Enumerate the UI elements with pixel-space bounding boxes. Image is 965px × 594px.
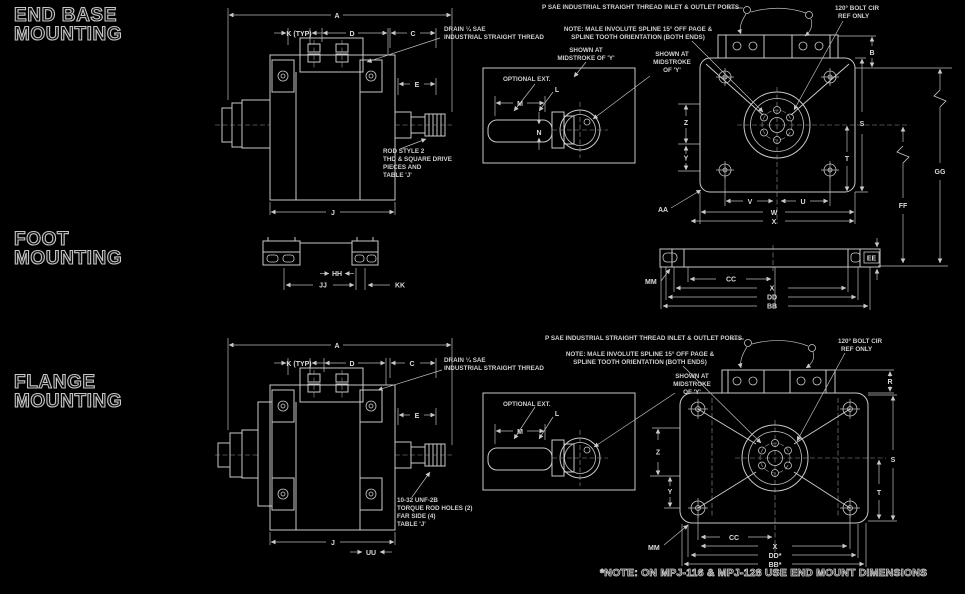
dim-label-t2: T — [877, 490, 882, 497]
dim-label-t: T — [845, 156, 850, 163]
dim-label-mm: MM — [645, 279, 657, 286]
flange-side-view: A K (TYP) D C E J UU DRAIN ¼ SAE INDUSTR… — [215, 338, 544, 557]
dim-label-c: C — [410, 31, 415, 38]
optional-ext-label: OPTIONAL EXT. — [503, 76, 551, 83]
dim-label-n: N — [536, 130, 541, 137]
foot-mounting-drawing: HH JJ KK MM CC X DD BB — [215, 230, 965, 325]
dim-label-kk: KK — [395, 283, 405, 290]
ports-note: P SAE INDUSTRIAL STRAIGHT THREAD INLET &… — [542, 4, 739, 11]
dim-label-w: W — [771, 210, 778, 217]
dim-label-y2: Y — [668, 489, 673, 496]
title-line: END BASE — [14, 5, 117, 26]
dim-label-gg: GG — [935, 169, 946, 176]
drain-note2-line2: INDUSTRIAL STRAIGHT THREAD — [444, 365, 544, 372]
dim-label-k2: K (TYP) — [286, 361, 311, 368]
flange-optional-extension-view: OPTIONAL EXT. L M — [483, 393, 675, 490]
title-line: MOUNTING — [14, 248, 122, 269]
dim-label-aa: AA — [658, 207, 668, 214]
dim-label-bb: BB — [767, 304, 777, 311]
spline-note-line2: SPLINE TOOTH ORIENTATION (BOTH ENDS) — [571, 34, 705, 41]
dim-label-l: L — [555, 87, 560, 94]
dim-label-d2: D — [349, 361, 354, 368]
dim-label-uu: UU — [366, 550, 376, 557]
midstroke-note2-line3: OF 'Y' — [663, 67, 681, 74]
dim-label-u: U — [800, 199, 805, 206]
drawing-sheet: END BASEMOUNTING FOOTMOUNTING FLANGEMOUN… — [0, 0, 965, 594]
midstroke-note3-line3: OF 'Y' — [683, 389, 701, 396]
dim-label-d: D — [349, 31, 354, 38]
rod-note2-line2: TORQUE ROD HOLES (2) — [397, 505, 472, 512]
title-line: MOUNTING — [14, 391, 122, 412]
rod-note-line2: THD & SQUARE DRIVE — [383, 156, 452, 163]
section-title-end-base: END BASEMOUNTING — [14, 6, 122, 44]
bolt-circle-note2-line2: REF ONLY — [841, 346, 873, 353]
dim-label-s2: S — [891, 457, 896, 464]
dim-label-z: Z — [684, 120, 689, 127]
dim-label-dd-star: DD* — [769, 553, 782, 560]
dim-label-cc: CC — [726, 277, 736, 284]
midstroke-note2-line1: SHOWN AT — [655, 51, 689, 58]
rod-note2-line4: TABLE 'J' — [397, 521, 426, 528]
drain-note-line2: INDUSTRIAL STRAIGHT THREAD — [444, 34, 544, 41]
dim-label-x2: X — [770, 286, 775, 293]
dim-label-ee: EE — [867, 256, 877, 263]
midstroke-note3-line2: MIDSTROKE — [673, 381, 711, 388]
foot-side-view: HH JJ KK — [263, 237, 405, 290]
midstroke-note-line1: SHOWN AT — [569, 47, 603, 54]
dim-label-c2: C — [409, 361, 414, 368]
spline-note2-line1: NOTE: MALE INVOLUTE SPLINE 15° OFF PAGE … — [566, 350, 715, 358]
title-line: MOUNTING — [14, 24, 122, 45]
sheet-footnote: *NOTE: ON MPJ-116 & MPJ-128 USE END MOUN… — [600, 567, 927, 579]
rod-note2-line3: FAR SIDE (4) — [397, 513, 436, 520]
flange-end-view: P SAE INDUSTRIAL STRAIGHT THREAD INLET &… — [545, 335, 897, 569]
corner-bolt-bosses — [716, 68, 839, 179]
rod-note2-line1: 10-32 UNF-2B — [397, 497, 438, 504]
section-title-foot: FOOTMOUNTING — [14, 230, 122, 268]
dim-label-mm2: MM — [648, 545, 660, 552]
rod-note-line4: TABLE 'J' — [383, 172, 412, 179]
dim-label-j2: J — [331, 540, 335, 547]
dim-label-e: E — [415, 82, 420, 89]
bolt-circle-note-line1: 120° BOLT CIR — [835, 4, 879, 12]
flange-corner-holes — [688, 399, 860, 518]
dim-label-m: M — [517, 101, 523, 108]
title-line: FLANGE — [14, 372, 96, 393]
rod-note-line3: PIECES AND — [383, 164, 422, 171]
title-line: FOOT — [14, 229, 69, 250]
ports-note2: P SAE INDUSTRIAL STRAIGHT THREAD INLET &… — [545, 335, 742, 342]
optional-extension-view: OPTIONAL EXT. L M N SHOWN AT MIDSTROKE O… — [483, 47, 650, 163]
dim-label-j: J — [331, 210, 335, 217]
dim-label-x: X — [772, 219, 777, 226]
midstroke-note2-line2: MIDSTROKE — [653, 59, 691, 66]
dim-label-ff: FF — [899, 203, 908, 210]
section-title-flange: FLANGEMOUNTING — [14, 373, 122, 411]
dim-label-dd: DD — [767, 295, 777, 302]
dim-label-a2: A — [334, 343, 339, 350]
dim-label-s: S — [860, 121, 865, 128]
dim-label-b: B — [869, 50, 874, 57]
dim-label-e2: E — [415, 413, 420, 420]
dim-label-l2: L — [555, 411, 560, 418]
flange-mounting-drawing: A K (TYP) D C E J UU DRAIN ¼ SAE INDUSTR… — [215, 330, 965, 580]
dim-label-x3: X — [773, 544, 778, 551]
dim-label-m2: M — [517, 429, 523, 436]
dim-label-z2: Z — [656, 450, 661, 457]
bolt-circle-note-line2: REF ONLY — [838, 13, 870, 20]
drain-note-line1: DRAIN ¼ SAE — [444, 25, 486, 33]
dim-label-a: A — [334, 13, 339, 20]
spline-note2-line2: SPLINE TOOTH ORIENTATION (BOTH ENDS) — [573, 359, 707, 366]
dim-label-y: Y — [684, 156, 689, 163]
end-view: P SAE INDUSTRIAL STRAIGHT THREAD INLET &… — [542, 4, 952, 266]
dim-label-hh: HH — [332, 271, 342, 278]
spline-note-line1: NOTE: MALE INVOLUTE SPLINE 15° OFF PAGE … — [564, 25, 713, 33]
dim-label-cc2: CC — [729, 535, 739, 542]
bolt-circle-note2-line1: 120° BOLT CIR — [838, 337, 882, 345]
foot-bottom-view: MM CC X DD BB EE — [645, 238, 880, 311]
dim-label-r: R — [887, 379, 892, 386]
dim-label-v: V — [748, 199, 753, 206]
drain-note2-line1: DRAIN ¼ SAE — [444, 356, 486, 364]
optional-ext-label2: OPTIONAL EXT. — [503, 401, 551, 408]
dim-label-k: K (TYP) — [286, 31, 311, 38]
rod-note-line1: ROD STYLE 2 — [383, 148, 425, 155]
midstroke-note3-line1: SHOWN AT — [675, 373, 709, 380]
midstroke-note-line2: MIDSTROKE OF 'Y' — [557, 55, 615, 62]
dim-label-jj: JJ — [319, 283, 327, 290]
